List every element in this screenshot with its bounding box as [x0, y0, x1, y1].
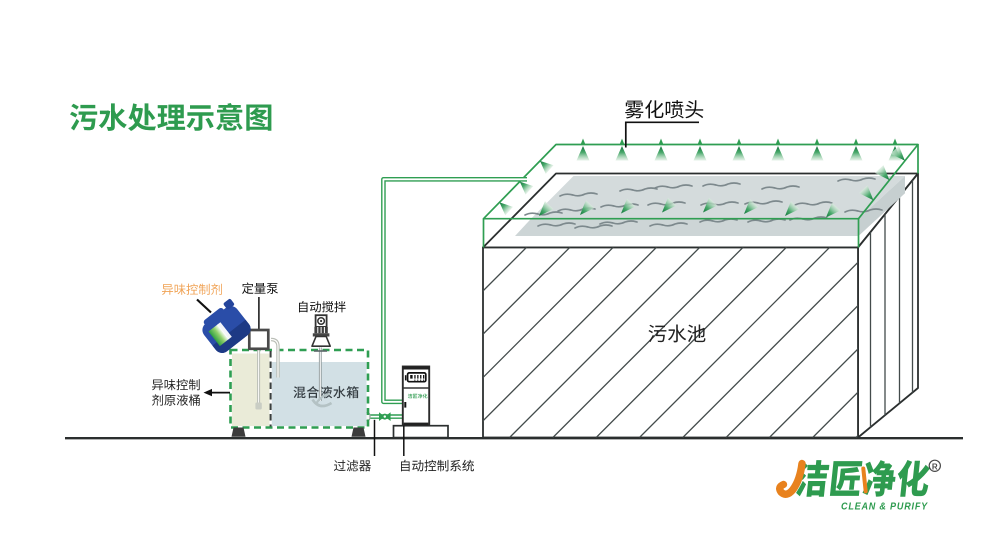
svg-text:R: R	[932, 462, 938, 471]
svg-text:CLEAN & PURIFY: CLEAN & PURIFY	[841, 502, 928, 513]
